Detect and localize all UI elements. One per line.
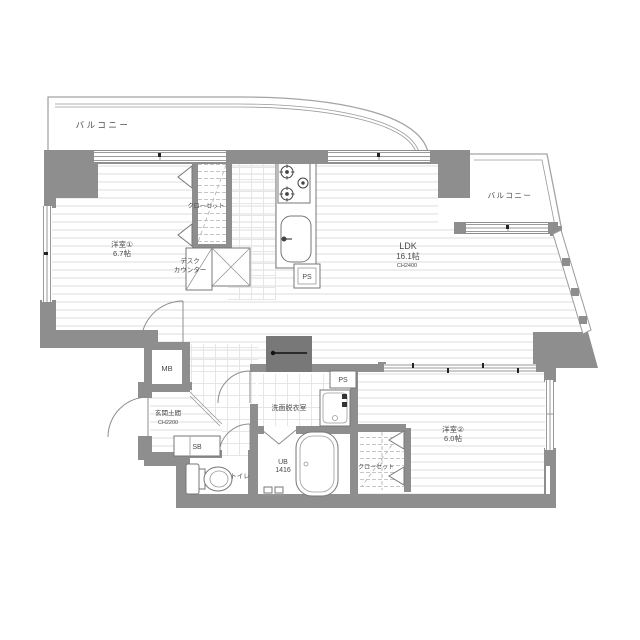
ps-kitchen-label: PS — [302, 274, 312, 281]
floor-plan-svg: バルコニー バルコニー クローゼット 洋室① 6.7帖 デスク カウンター PS… — [0, 0, 640, 640]
ub-name: UB — [278, 459, 288, 466]
sliding-doors-ldk-room2 — [384, 363, 536, 373]
kitchen-counter — [276, 158, 316, 268]
ldk-name: LDK — [399, 241, 417, 251]
ub-size: 1416 — [275, 467, 291, 474]
desk-counter-label-1: デスク — [180, 256, 200, 265]
closet1-label: クローゼット — [187, 202, 224, 210]
room1-size: 6.7帖 — [113, 248, 131, 258]
genkan-ceiling-height: CH2200 — [158, 420, 178, 426]
ldk-ceiling-height: CH2400 — [397, 263, 417, 269]
closet-room2 — [358, 431, 404, 490]
floor-plan-page: バルコニー バルコニー クローゼット 洋室① 6.7帖 デスク カウンター PS… — [0, 0, 640, 640]
room2-name: 洋室② — [442, 424, 464, 434]
room1-name: 洋室① — [111, 239, 133, 249]
closet2-label: クローゼット — [358, 463, 394, 471]
ps-bath-label: PS — [338, 377, 348, 384]
window-balcony-right — [466, 223, 548, 233]
washing-machine-space — [320, 390, 350, 426]
window-left-room1 — [42, 206, 52, 302]
balcony-right — [470, 154, 561, 226]
washroom-label: 洗面脱衣室 — [272, 403, 307, 412]
fridge-space — [212, 248, 250, 286]
genkan-name: 玄関土間 — [155, 408, 181, 417]
room2-size: 6.0帖 — [444, 433, 462, 443]
window-top-room1 — [94, 151, 226, 162]
window-room2-right — [545, 380, 554, 450]
window-top-ldk — [328, 151, 430, 162]
shaft-column — [266, 336, 312, 372]
balcony-left-label: バルコニー — [76, 120, 131, 130]
bathtub — [296, 432, 338, 496]
mb-label: MB — [161, 364, 172, 373]
ldk-size: 16.1帖 — [396, 251, 420, 261]
door-entrance — [108, 397, 148, 437]
desk-counter-label-2: カウンター — [174, 265, 207, 274]
balcony-right-label: バルコニー — [488, 191, 533, 200]
toilet-label: トイレ — [230, 473, 250, 480]
sb-label: SB — [192, 444, 202, 451]
